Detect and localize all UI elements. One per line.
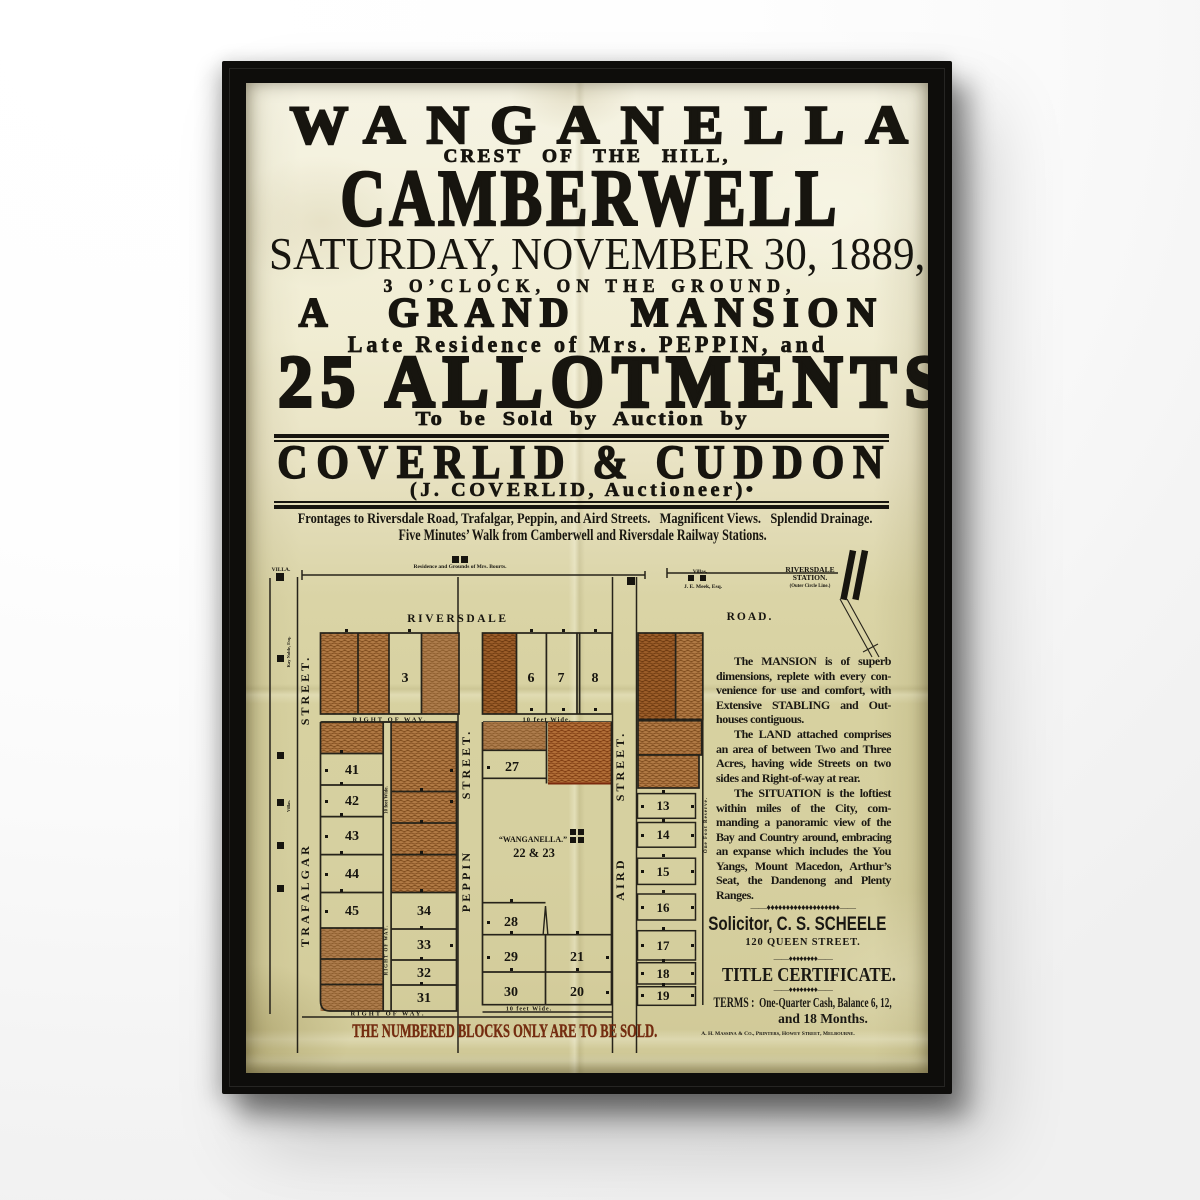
svg-text:22 & 23: 22 & 23 [513, 846, 555, 860]
svg-text:Residence and Grounds of Mrs.: Residence and Grounds of Mrs. Bourts. [414, 564, 508, 570]
svg-text:“WANGANELLA.”: “WANGANELLA.” [499, 835, 567, 844]
svg-text:AIRD: AIRD [613, 857, 627, 900]
svg-text:18: 18 [657, 966, 671, 981]
svg-text:Villas,: Villas, [693, 569, 708, 575]
svg-text:STREET.: STREET. [459, 729, 473, 799]
svg-text:3: 3 [402, 671, 409, 686]
svg-text:PEPPIN: PEPPIN [459, 850, 473, 913]
svg-text:45: 45 [345, 904, 359, 919]
svg-text:21: 21 [570, 950, 584, 965]
svg-text:29: 29 [504, 950, 518, 965]
svg-text:44: 44 [345, 867, 359, 882]
svg-text:43: 43 [345, 829, 359, 844]
svg-text:One Foot Reserve.: One Foot Reserve. [704, 797, 709, 853]
svg-text:RIGHT OF WAY.: RIGHT OF WAY. [385, 925, 390, 976]
svg-text:J. E. Meek, Esq.: J. E. Meek, Esq. [684, 584, 723, 590]
svg-text:ROAD.: ROAD. [727, 611, 774, 623]
svg-text:34: 34 [417, 904, 431, 919]
svg-text:Villas.: Villas. [286, 800, 291, 812]
svg-text:28: 28 [504, 915, 518, 930]
svg-text:7: 7 [558, 671, 565, 686]
svg-text:33: 33 [417, 938, 431, 953]
svg-text:VILLA.: VILLA. [272, 567, 291, 573]
svg-text:6: 6 [528, 671, 535, 686]
svg-text:42: 42 [345, 794, 359, 809]
svg-text:41: 41 [345, 763, 359, 778]
svg-text:27: 27 [505, 760, 519, 775]
svg-text:RIGHT OF WAY.: RIGHT OF WAY. [350, 1011, 425, 1018]
svg-text:31: 31 [417, 991, 431, 1006]
svg-text:30: 30 [504, 985, 518, 1000]
svg-text:STREET.: STREET. [298, 655, 312, 725]
svg-text:TRAFALGAR: TRAFALGAR [298, 843, 312, 947]
svg-text:Kay Noble, Esq.: Kay Noble, Esq. [286, 636, 291, 667]
svg-text:16: 16 [657, 900, 671, 915]
svg-text:17: 17 [657, 938, 671, 953]
svg-text:10 feet Wide.: 10 feet Wide. [385, 785, 390, 813]
svg-text:19: 19 [657, 988, 671, 1003]
svg-text:STREET.: STREET. [613, 731, 627, 801]
svg-text:15: 15 [657, 864, 671, 879]
svg-text:32: 32 [417, 966, 431, 981]
svg-text:RIVERSDALE: RIVERSDALE [407, 613, 508, 625]
svg-text:13: 13 [657, 798, 671, 813]
svg-text:20: 20 [570, 985, 584, 1000]
svg-text:STATION.: STATION. [793, 573, 828, 582]
svg-text:14: 14 [657, 827, 671, 842]
svg-text:10 feet Wide.: 10 feet Wide. [506, 1007, 552, 1013]
svg-text:(Outer Circle Line.): (Outer Circle Line.) [790, 584, 831, 589]
svg-text:8: 8 [592, 671, 599, 686]
